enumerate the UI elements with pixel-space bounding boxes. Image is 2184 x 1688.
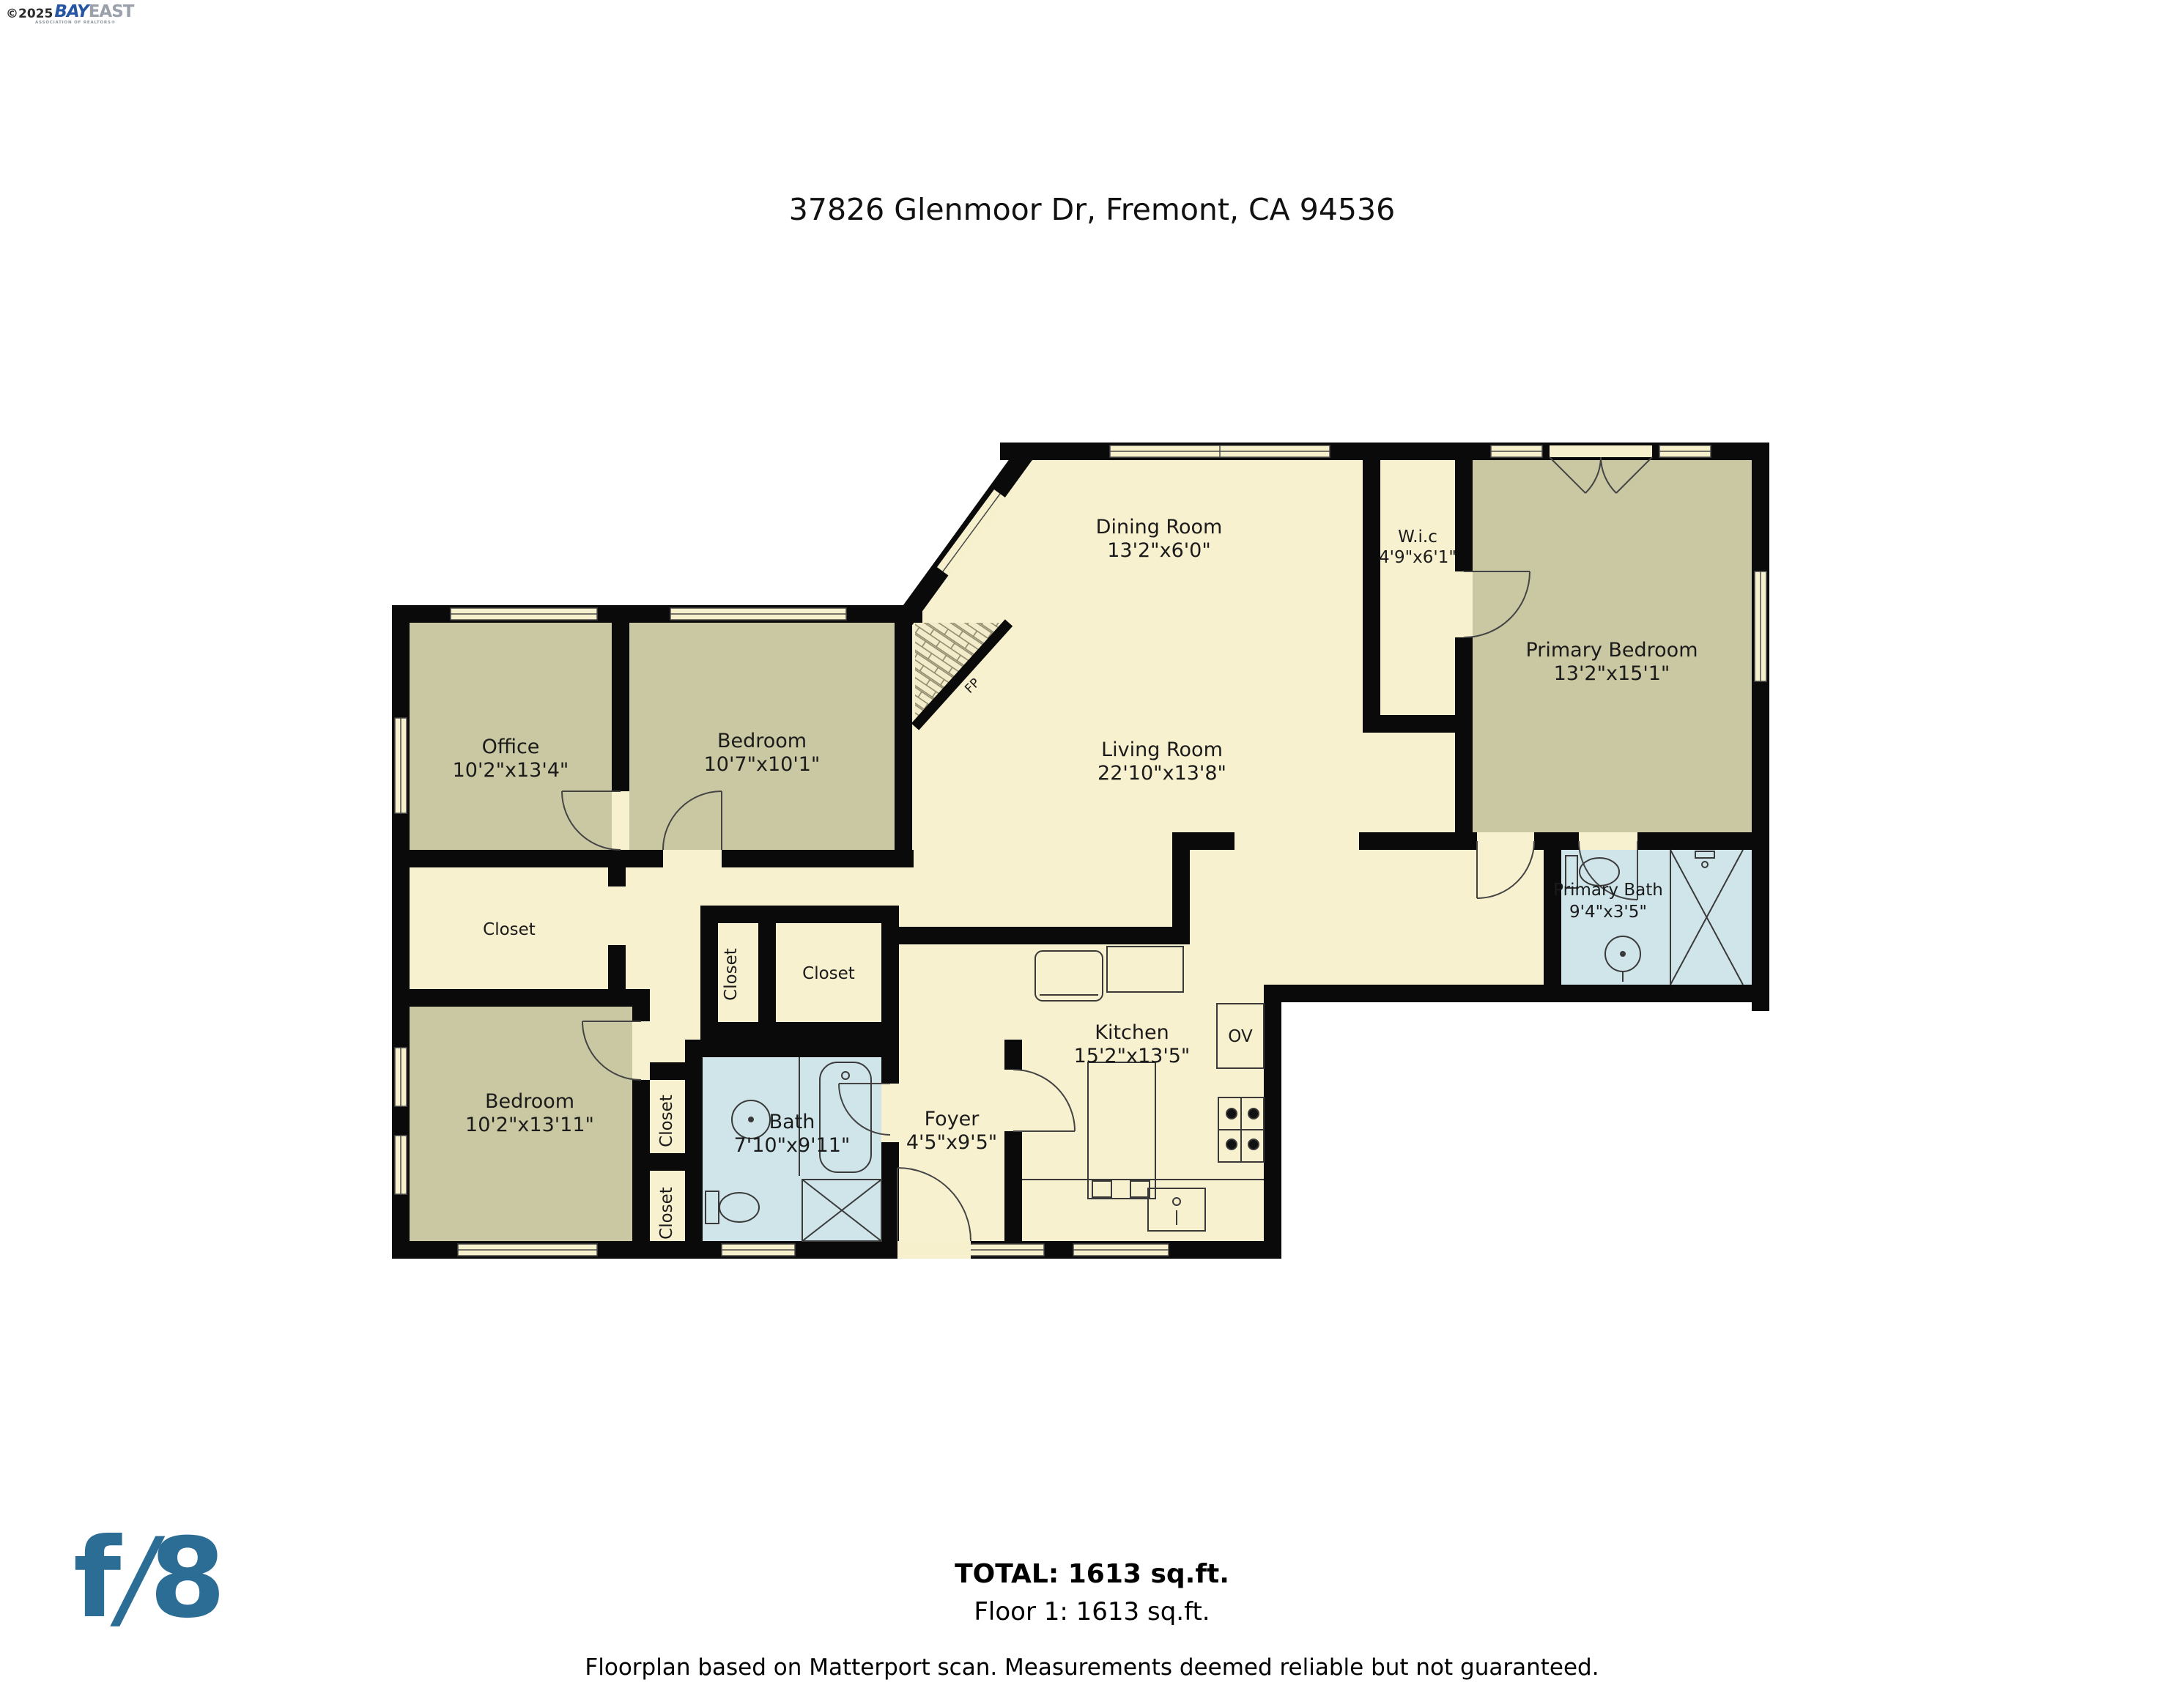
total-sqft-text: TOTAL: 1613 sq.ft.: [0, 1559, 2184, 1589]
label-office-dims: 10'2"x13'4": [453, 759, 569, 782]
bayeast-east: EAST: [89, 4, 134, 21]
label-living-name: Living Room: [1101, 738, 1223, 761]
label-foyer-dims: 4'5"x9'5": [906, 1131, 997, 1154]
label-bedroom-bottom-name: Bedroom: [485, 1090, 574, 1113]
label-living-dims: 22'10"x13'8": [1097, 762, 1226, 785]
label-kitchen-dims: 15'2"x13'5": [1074, 1045, 1191, 1067]
label-wic-name: W.i.c: [1398, 527, 1437, 547]
label-primary-bath-dims: 9'4"x3'5": [1569, 903, 1647, 922]
label-oven: OV: [1228, 1027, 1253, 1046]
label-bedroom-bottom-dims: 10'2"x13'11": [465, 1114, 594, 1136]
label-bath-name: Bath: [769, 1111, 815, 1133]
label-bath-dims: 7'10"x9'11": [734, 1134, 851, 1157]
label-primary-bedroom-name: Primary Bedroom: [1525, 639, 1698, 662]
copyright-text: ©2025: [6, 8, 53, 21]
label-dining-name: Dining Room: [1096, 516, 1223, 538]
label-office-name: Office: [482, 736, 540, 758]
disclaimer-text: Floorplan based on Matterport scan. Meas…: [0, 1654, 2184, 1681]
floorplan-page: { "branding": { "copyright": "©2025", "b…: [0, 0, 2184, 1688]
label-closet-hall-large: Closet: [802, 964, 855, 983]
floor1-sqft-text: Floor 1: 1613 sq.ft.: [0, 1597, 2184, 1626]
label-closet-hall-small: Closet: [722, 948, 741, 1001]
label-closet-bed-upper: Closet: [657, 1095, 676, 1147]
label-foyer-name: Foyer: [925, 1108, 980, 1130]
label-bedroom-top-name: Bedroom: [717, 730, 807, 752]
bayeast-subtitle: ASSOCIATION OF REALTORS®: [35, 21, 133, 26]
label-closet-office: Closet: [483, 920, 536, 939]
floorplan-drawing: Dining Room 13'2"x6'0" W.i.c 4'9"x6'1" P…: [392, 440, 1769, 1275]
page-title: 37826 Glenmoor Dr, Fremont, CA 94536: [0, 192, 2184, 227]
label-closet-bed-lower: Closet: [657, 1187, 676, 1240]
bayeast-logo: ©2025 BAY EAST ASSOCIATION OF REALTORS®: [6, 4, 133, 26]
label-wic-dims: 4'9"x6'1": [1379, 548, 1456, 567]
label-primary-bath-name: Primary Bath: [1553, 881, 1663, 900]
bayeast-bay: BAY: [54, 4, 88, 21]
label-dining-dims: 13'2"x6'0": [1107, 539, 1211, 562]
label-bedroom-top-dims: 10'7"x10'1": [704, 753, 821, 776]
label-primary-bedroom-dims: 13'2"x15'1": [1554, 662, 1670, 685]
label-kitchen-name: Kitchen: [1095, 1021, 1169, 1044]
